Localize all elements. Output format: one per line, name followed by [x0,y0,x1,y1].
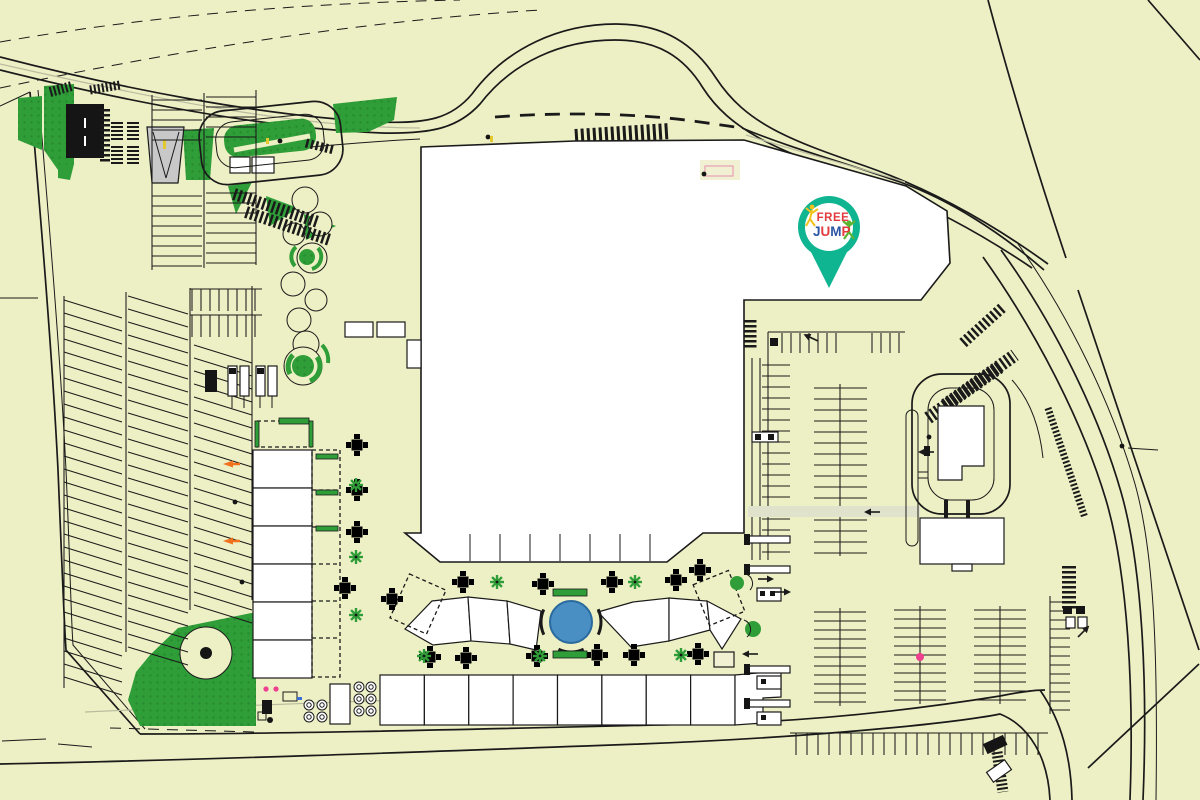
tree-icon [349,478,363,492]
pink-dot [916,653,924,661]
bench [316,490,338,495]
lamp-dot [240,580,245,585]
lamp-dot [702,172,707,177]
dark-service-building [66,104,104,158]
bench [255,421,259,447]
site-plan-map: FREE JUMP [0,0,1200,800]
pin-logo-jump-text: JUMP [813,224,851,239]
tree-icon [533,649,547,663]
bench [316,526,338,531]
tree-icon [349,550,363,564]
tree-icon [417,649,431,663]
pink-dot [273,686,278,691]
central-plaza-fountain [550,601,592,643]
hydrant-mark [266,138,269,144]
plaza-kiosk [468,597,510,644]
bench [553,589,587,596]
tree-icon [674,648,688,662]
lamp-dot [278,139,283,144]
booth [230,157,250,173]
bench [316,454,338,459]
pad-building [920,518,1004,564]
bench [553,651,587,658]
tree-icon [349,608,363,622]
lamp-dot [927,435,932,440]
tree-icon [628,575,642,589]
round-planter [730,576,744,590]
lamp-dot [233,500,238,505]
round-planter [745,621,761,637]
pink-dot [263,686,268,691]
hydrant-mark [490,136,493,142]
bench [279,418,309,424]
bench [309,421,313,447]
lamp-dot [486,135,491,140]
pin-logo-free-text: FREE [817,212,850,224]
tree-icon [490,575,504,589]
lamp-dot [1120,444,1125,449]
